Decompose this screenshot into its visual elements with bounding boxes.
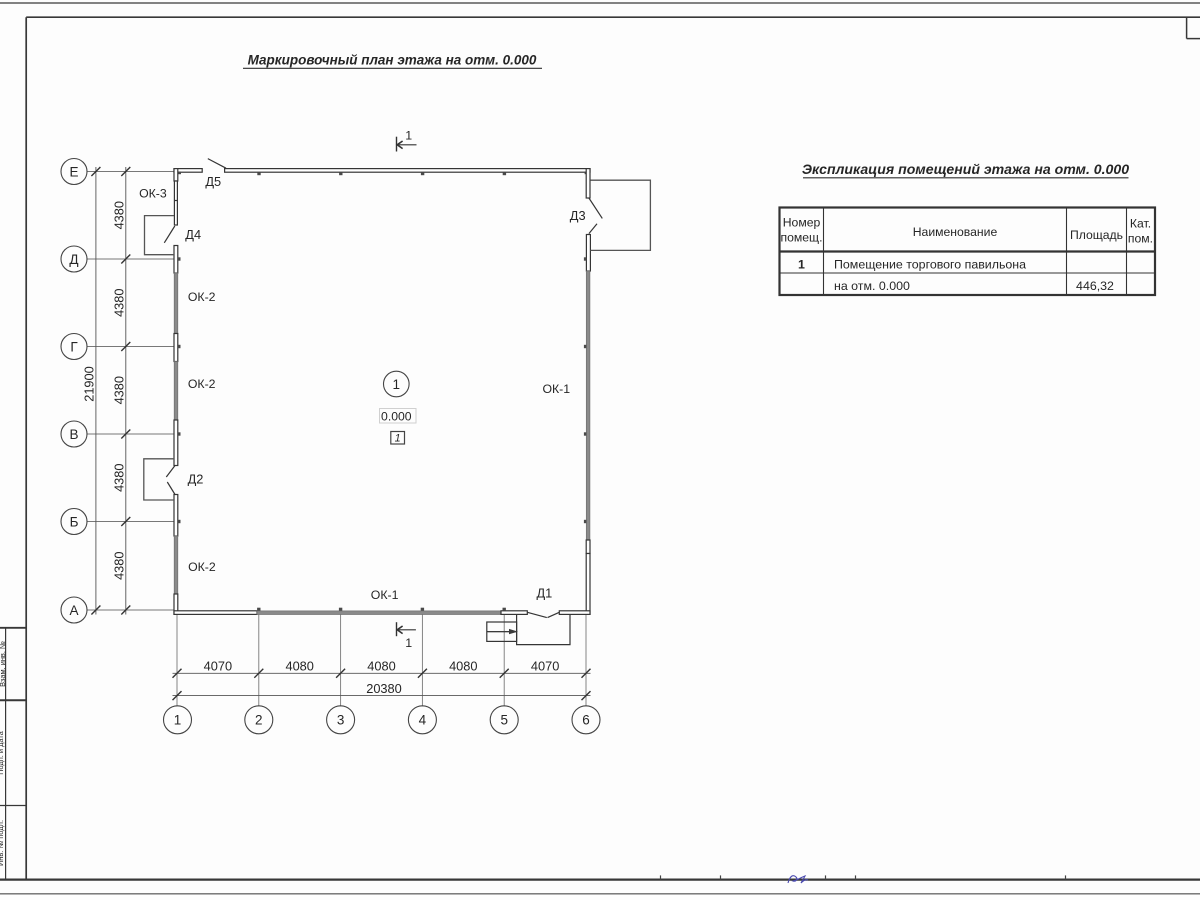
- svg-text:Б: Б: [70, 514, 79, 529]
- svg-text:1: 1: [405, 128, 412, 142]
- svg-text:4380: 4380: [111, 376, 126, 404]
- svg-text:Д2: Д2: [188, 472, 204, 487]
- svg-text:4380: 4380: [111, 463, 126, 491]
- svg-text:А: А: [69, 603, 78, 618]
- svg-text:6: 6: [582, 713, 590, 728]
- svg-text:4380: 4380: [111, 551, 126, 579]
- svg-text:1: 1: [393, 377, 401, 392]
- svg-text:4380: 4380: [111, 288, 126, 316]
- svg-text:4070: 4070: [204, 658, 232, 673]
- svg-text:Кат.: Кат.: [1130, 217, 1151, 231]
- svg-text:4080: 4080: [449, 658, 477, 673]
- svg-text:на отм. 0.000: на отм. 0.000: [834, 279, 910, 293]
- svg-text:Помещение торгового павильона: Помещение торгового павильона: [834, 257, 1026, 271]
- svg-text:Г: Г: [70, 339, 78, 354]
- svg-text:ОК-2: ОК-2: [188, 560, 216, 574]
- svg-text:1: 1: [174, 713, 182, 728]
- svg-text:Взам. инв. №: Взам. инв. №: [0, 641, 7, 687]
- svg-text:20380: 20380: [366, 681, 402, 696]
- svg-text:ОК-2: ОК-2: [188, 290, 216, 304]
- svg-text:Инв. № подл.: Инв. № подл.: [0, 820, 5, 866]
- svg-text:ОК-1: ОК-1: [542, 382, 570, 396]
- svg-text:помещ.: помещ.: [781, 231, 823, 245]
- svg-text:2: 2: [255, 713, 263, 728]
- svg-text:ОК-3: ОК-3: [139, 187, 167, 201]
- svg-text:Д5: Д5: [205, 174, 221, 189]
- svg-text:Номер: Номер: [783, 216, 821, 230]
- svg-text:4070: 4070: [531, 658, 559, 673]
- svg-text:Наименование: Наименование: [913, 225, 998, 239]
- svg-text:В: В: [69, 427, 78, 442]
- svg-text:1: 1: [798, 257, 805, 271]
- svg-text:Маркировочный план этажа на от: Маркировочный план этажа на отм. 0.000: [248, 53, 537, 68]
- svg-text:21900: 21900: [82, 366, 97, 402]
- svg-text:1: 1: [405, 636, 412, 650]
- svg-text:5: 5: [500, 713, 508, 728]
- svg-text:Д3: Д3: [570, 208, 586, 223]
- svg-text:Подп. и дата: Подп. и дата: [0, 730, 5, 774]
- svg-text:Площадь: Площадь: [1070, 228, 1123, 242]
- svg-text:Д1: Д1: [537, 586, 553, 601]
- svg-text:ОК-1: ОК-1: [371, 588, 399, 602]
- svg-text:4080: 4080: [367, 658, 395, 673]
- svg-text:Д4: Д4: [185, 227, 201, 242]
- svg-text:Д: Д: [69, 252, 78, 267]
- svg-text:0.000: 0.000: [381, 409, 412, 423]
- svg-text:ОК-2: ОК-2: [188, 377, 216, 391]
- svg-text:4080: 4080: [285, 658, 313, 673]
- svg-text:Экспликация помещений этажа на: Экспликация помещений этажа на отм. 0.00…: [802, 161, 1129, 177]
- svg-text:пом.: пом.: [1128, 232, 1153, 246]
- svg-text:1: 1: [395, 433, 401, 445]
- svg-text:Е: Е: [69, 164, 78, 179]
- svg-text:4: 4: [419, 713, 427, 728]
- svg-text:4380: 4380: [111, 201, 126, 229]
- svg-text:3: 3: [337, 713, 345, 728]
- svg-text:446,32: 446,32: [1076, 279, 1114, 293]
